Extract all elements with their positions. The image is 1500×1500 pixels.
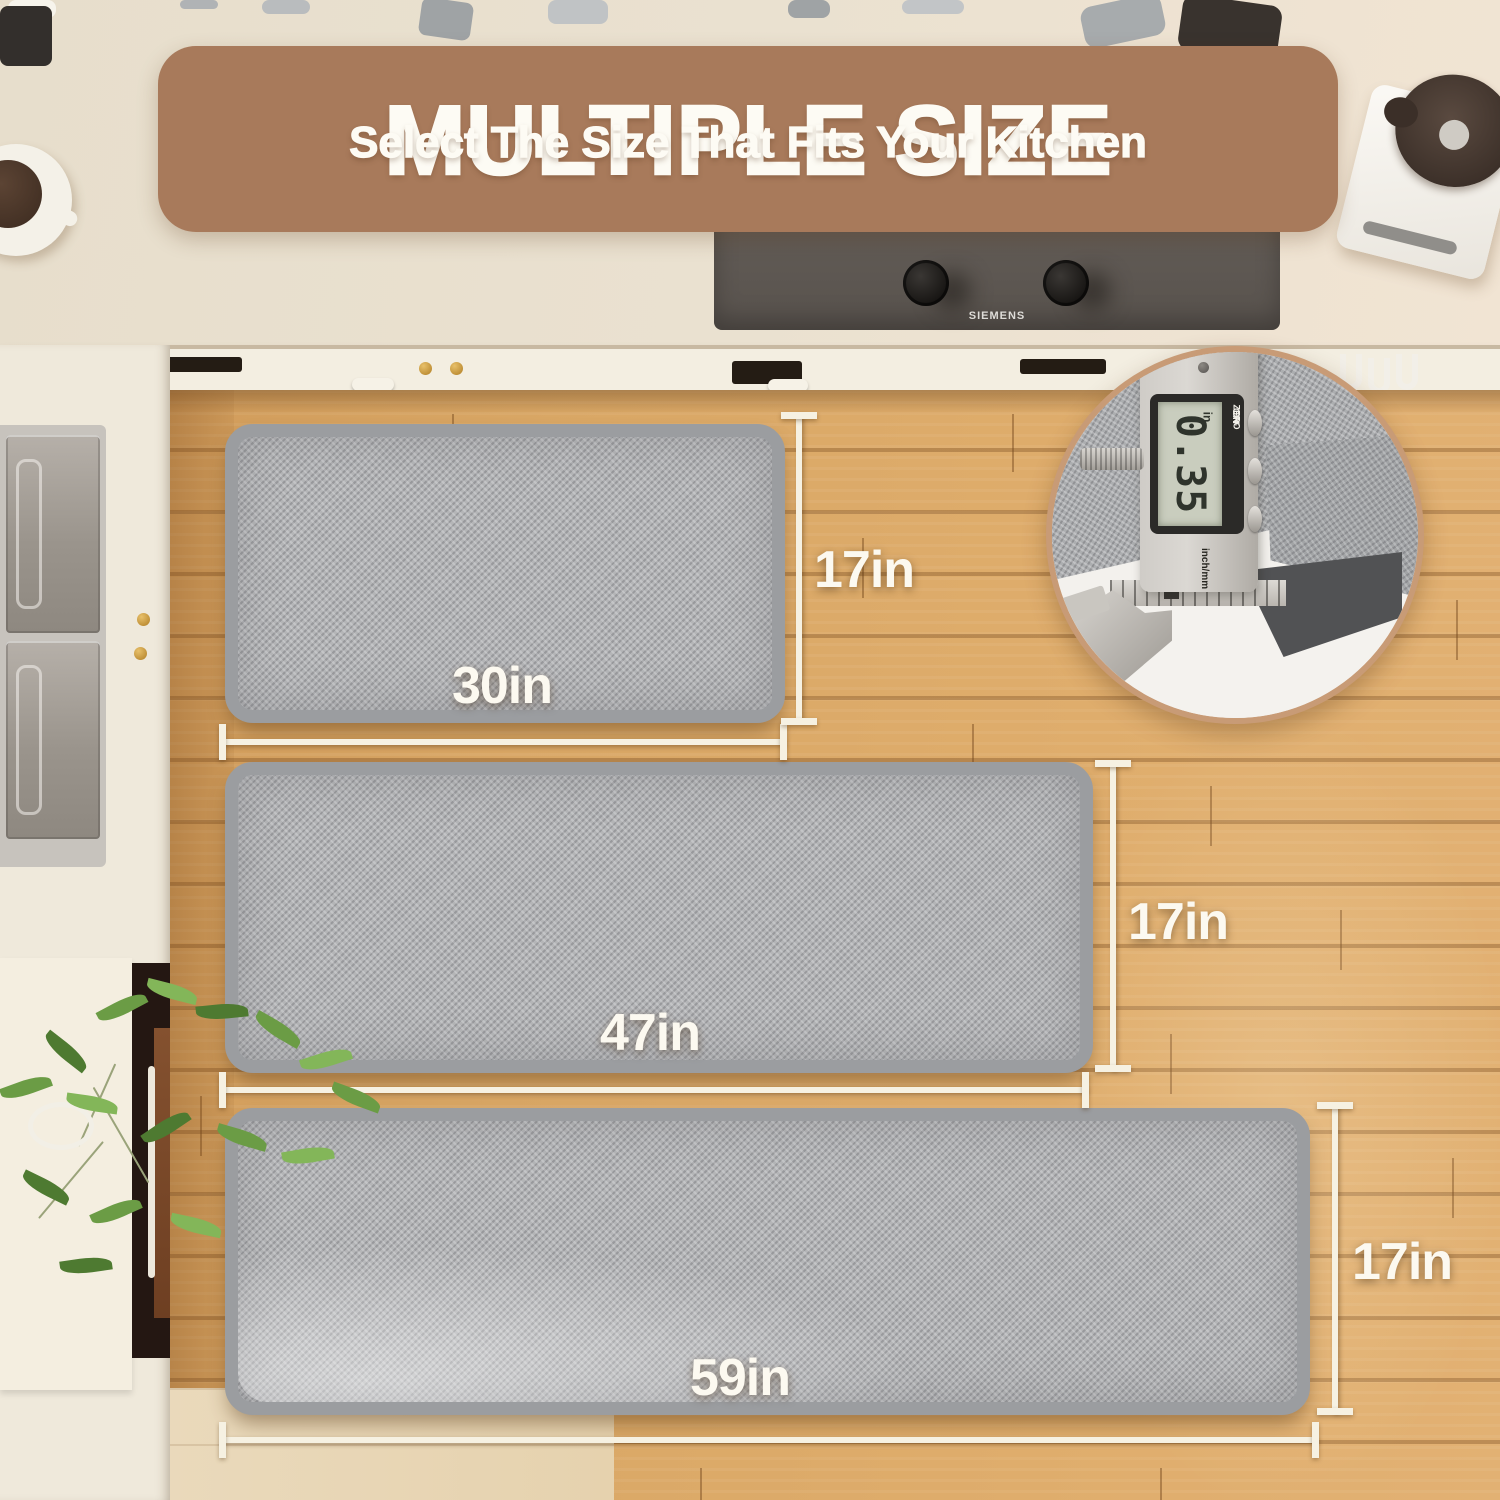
dimension-cap — [219, 1072, 226, 1108]
steel-appliance — [0, 425, 106, 867]
dimension-cap — [1082, 1072, 1089, 1108]
dimension-cap — [1095, 760, 1131, 767]
kitchen-island-top — [0, 958, 132, 1390]
drawer-knob — [450, 362, 463, 375]
caliper-mode-label: inch/mm — [1199, 548, 1210, 589]
left-cabinet-column — [0, 345, 170, 1500]
door-etch — [16, 665, 42, 815]
height-label-medium: 17in — [1128, 892, 1228, 952]
caliper-unit: in — [1200, 412, 1214, 423]
gray-canister — [418, 0, 475, 41]
cooktop-knob-left — [903, 260, 949, 306]
cabinet-knob — [134, 647, 147, 660]
dimension-cap — [1317, 1102, 1353, 1109]
width-label-large: 59in — [690, 1348, 790, 1408]
width-label-medium: 47in — [600, 1003, 700, 1063]
height-label-large: 17in — [1352, 1232, 1452, 1292]
width-label-small: 30in — [452, 656, 552, 716]
steel-tray — [180, 0, 218, 9]
dimension-cap — [781, 412, 817, 419]
dimension-line-height-large — [1332, 1105, 1338, 1415]
caliper-reading-value: 0.35 — [1167, 414, 1213, 514]
kitchen-mat-size-infographic: 30in 17in 47in 17in 59in 17in — [0, 0, 1500, 1500]
plank-joint — [1012, 414, 1014, 472]
pantry-handle — [148, 1066, 155, 1278]
caliper-button — [1248, 410, 1262, 436]
dimension-cap — [1312, 1422, 1319, 1458]
dimension-cap — [219, 724, 226, 760]
mat-sheen — [238, 1233, 979, 1402]
dimension-cap — [1095, 1065, 1131, 1072]
dimension-line-height-small — [796, 415, 802, 722]
caliper-screw — [1198, 362, 1209, 373]
height-label-small: 17in — [814, 540, 914, 600]
caliper-button-labels: ZERO ON OFF — [1228, 412, 1244, 542]
dimension-line-width-large — [222, 1437, 1318, 1443]
title-banner: MULTIPLE SIZE Select The Size That Fits … — [158, 46, 1338, 232]
lid-spout — [1381, 94, 1421, 131]
cooker-vent — [1362, 220, 1458, 256]
caliper-button — [1248, 506, 1262, 532]
thickness-inset-circle: 0.35 in ZERO ON OFF inch/mm — [1046, 346, 1424, 724]
drawer-knob — [419, 362, 432, 375]
lid-center-knob — [1436, 117, 1472, 153]
dimension-line-width-small — [222, 739, 786, 745]
cooktop-knob-right — [1043, 260, 1089, 306]
dimension-cap — [219, 1422, 226, 1458]
door-etch — [16, 459, 42, 609]
caliper-button-label: OFF — [1231, 408, 1241, 426]
dimension-line-height-medium — [1110, 763, 1116, 1072]
banner-subtitle: Select The Size That Fits Your Kitchen — [349, 117, 1147, 170]
pantry-shelf — [154, 1028, 170, 1318]
utensil — [788, 0, 830, 18]
plank-joint — [1456, 600, 1458, 660]
steel-item — [262, 0, 310, 14]
steel-appliance-door-lower — [6, 641, 100, 839]
caliper-button — [1248, 458, 1262, 484]
plank-joint — [1160, 1468, 1162, 1500]
dimension-cap — [1317, 1408, 1353, 1415]
steel-appliance-door-upper — [6, 435, 100, 633]
cabinet-knob — [137, 613, 150, 626]
plank-joint — [700, 1468, 702, 1500]
caliper-thumb-screw — [1080, 448, 1144, 470]
dimension-cap — [780, 724, 787, 760]
coffee-machine — [0, 6, 52, 66]
cooktop-brand-text: SIEMENS — [969, 310, 1026, 322]
steel-bowl — [548, 0, 608, 24]
dimension-cap — [781, 718, 817, 725]
grater — [902, 0, 964, 14]
